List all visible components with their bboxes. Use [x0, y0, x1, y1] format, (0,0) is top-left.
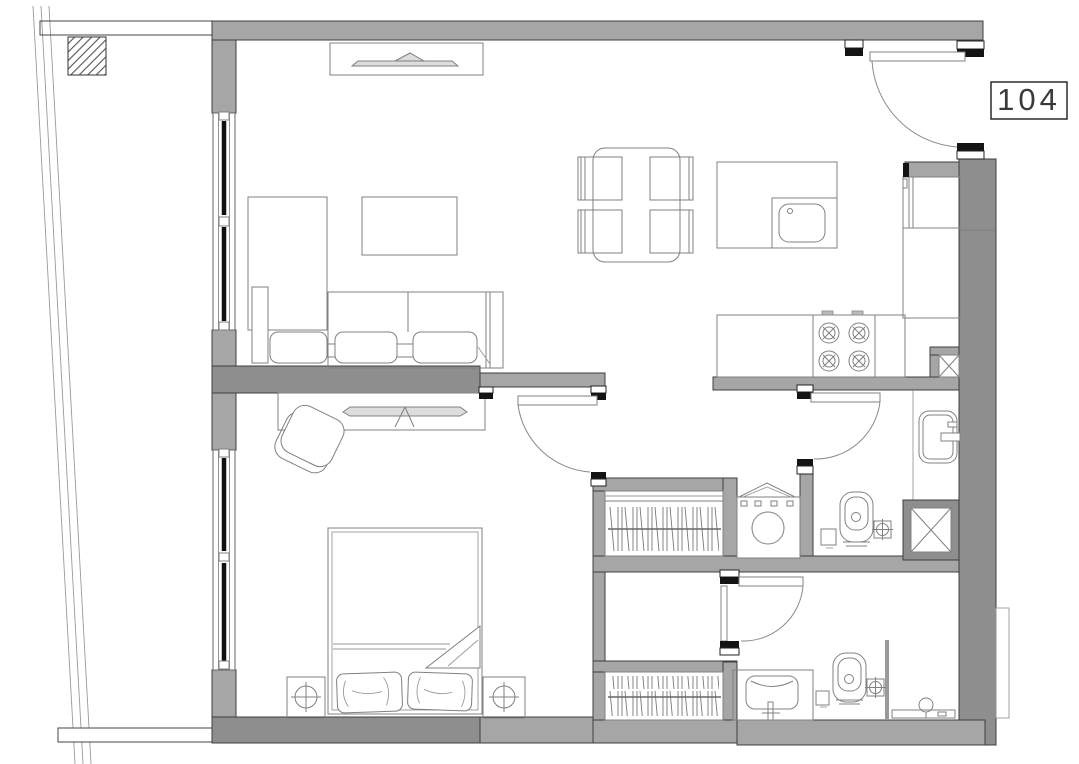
left-pier-a: [212, 40, 236, 113]
bottom-wall-dark: [212, 717, 480, 743]
door-swing-arc: [518, 405, 590, 472]
living-room: [248, 43, 503, 368]
window-living: [213, 112, 235, 330]
bathroom2-thin-wall: [721, 586, 727, 641]
left-pier-c: [212, 393, 236, 450]
floor-drain: [865, 677, 886, 698]
bathroom1-west-wall: [800, 474, 813, 558]
fridge: [903, 177, 960, 228]
right-exterior-wall: [959, 159, 996, 745]
door-swing-arc: [872, 61, 957, 147]
kitchen-sink: [772, 198, 837, 248]
stove: [813, 311, 875, 377]
burner: [819, 323, 839, 343]
waste-bin: [821, 529, 836, 545]
wardrobe-closet-1: [605, 491, 723, 556]
bedroom: [270, 393, 525, 718]
entry-door: [845, 40, 984, 159]
bathroom2-bottom-wall: [737, 720, 985, 745]
door-leaf: [811, 393, 880, 402]
wall-tv: [352, 53, 458, 66]
wardrobe-closet-2: [605, 672, 723, 720]
desk-monitor: [343, 407, 467, 427]
shower-glass: [885, 640, 889, 720]
dining-chair: [650, 210, 693, 253]
door-leaf: [739, 577, 803, 586]
toilet: [840, 492, 873, 546]
wash-basin: [919, 411, 960, 463]
bathroom-2: [733, 653, 955, 720]
window-bedroom: [213, 449, 235, 670]
pillow: [407, 672, 472, 711]
table-lamp: [489, 682, 519, 712]
unit-number-label: 104: [991, 82, 1067, 119]
kitchen-counter-bottom: [717, 315, 905, 377]
coffee-table: [362, 197, 457, 255]
dining-chair: [578, 157, 622, 200]
bedroom-east-wall: [593, 480, 605, 720]
bottom-wall-mid: [480, 717, 593, 743]
waste-bin: [816, 691, 829, 705]
wash-basin: [746, 676, 798, 720]
kitchen: [717, 162, 960, 377]
dining-chair: [578, 210, 622, 253]
pillow: [336, 672, 402, 713]
closet2-right-wall: [723, 662, 737, 720]
balcony-railing: [33, 6, 212, 764]
burner: [849, 351, 869, 371]
balcony-column: [68, 37, 106, 75]
duct-shaft-small: [930, 347, 959, 377]
door-swing-arc: [814, 402, 880, 459]
floor-drain: [872, 519, 893, 540]
left-pier-b: [212, 330, 236, 366]
left-pier-d: [212, 670, 236, 717]
burner: [819, 351, 839, 371]
balcony: [33, 6, 212, 764]
washing-machine: [737, 483, 800, 558]
nightstand: [287, 677, 325, 718]
dining-chair: [650, 157, 693, 200]
floor-plan: 104: [0, 0, 1079, 764]
door-leaf: [518, 396, 597, 405]
closet1-top-wall: [593, 478, 737, 491]
balcony-parapet: [40, 21, 212, 35]
bed: [328, 528, 482, 714]
top-wall: [212, 21, 983, 40]
bathroom-1: [821, 390, 960, 560]
table-lamp: [291, 682, 321, 712]
balcony-slab: [58, 728, 212, 742]
duct-shaft-large: [903, 500, 959, 560]
sofa-cushion: [335, 332, 397, 363]
living-bedroom-wall-thick: [212, 366, 480, 393]
toilet: [833, 653, 866, 704]
dining-table: [593, 148, 680, 262]
bedroom-door: [479, 386, 606, 486]
closet2-bottom-wall: [593, 720, 737, 743]
bathroom1-door: [797, 385, 880, 474]
shower-set: [892, 698, 955, 718]
unit-number-text: 104: [997, 82, 1061, 117]
sofa-cushion: [270, 332, 327, 363]
bathroom2-door: [720, 570, 803, 655]
sofa-cushion: [413, 332, 477, 363]
sofa: [252, 287, 503, 368]
office-chair: [270, 400, 348, 478]
kitchen-bottom-wall: [713, 377, 959, 390]
living-bedroom-wall-thin: [480, 373, 605, 387]
closet2-top-wall: [593, 661, 737, 672]
nightstand: [483, 677, 525, 718]
door-swing-arc: [741, 586, 803, 641]
kitchen-counter-right: [903, 228, 960, 318]
dining-set: [578, 148, 693, 262]
burner: [849, 323, 869, 343]
door-leaf: [870, 52, 965, 61]
exterior-step: [996, 608, 1009, 718]
